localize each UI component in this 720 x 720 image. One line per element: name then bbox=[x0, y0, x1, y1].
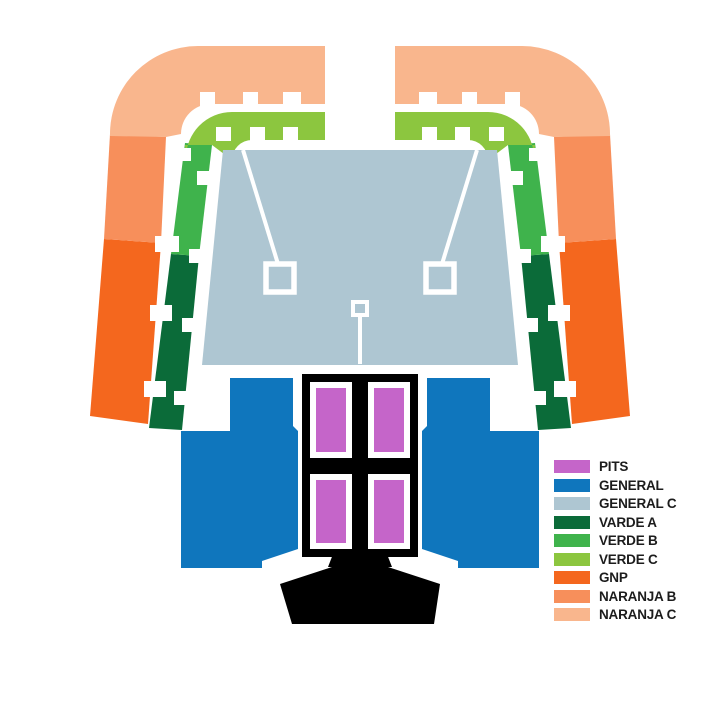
legend-swatch-general-c bbox=[554, 497, 590, 510]
legend-item-general-c: GENERAL C bbox=[554, 497, 676, 510]
legend-swatch-verde-b bbox=[554, 534, 590, 547]
stage bbox=[280, 567, 440, 624]
legend-swatch-varde-a bbox=[554, 516, 590, 529]
gate-notch bbox=[189, 249, 209, 263]
section-pits-2[interactable] bbox=[374, 388, 404, 452]
legend-item-verde-c: VERDE C bbox=[554, 553, 676, 566]
legend-label-verde-b: VERDE B bbox=[599, 534, 658, 547]
legend-swatch-naranja-c bbox=[554, 608, 590, 621]
legend-label-naranja-b: NARANJA B bbox=[599, 590, 676, 603]
legend-item-pits: PITS bbox=[554, 460, 676, 473]
legend-item-gnp: GNP bbox=[554, 571, 676, 584]
legend-item-naranja-c: NARANJA C bbox=[554, 608, 676, 621]
legend-label-verde-c: VERDE C bbox=[599, 553, 658, 566]
legend-swatch-general bbox=[554, 479, 590, 492]
seating-chart-page: PITS GENERAL GENERAL C VARDE A VERDE B V… bbox=[0, 0, 720, 720]
gate-notch bbox=[155, 236, 179, 252]
legend-swatch-pits bbox=[554, 460, 590, 473]
gate-notch bbox=[283, 92, 301, 106]
gate-notch bbox=[150, 305, 172, 321]
legend-item-general: GENERAL bbox=[554, 479, 676, 492]
gate-notch bbox=[216, 127, 231, 141]
legend-swatch-gnp bbox=[554, 571, 590, 584]
legend: PITS GENERAL GENERAL C VARDE A VERDE B V… bbox=[554, 460, 676, 621]
legend-label-varde-a: VARDE A bbox=[599, 516, 657, 529]
pits-block bbox=[302, 374, 418, 557]
legend-item-varde-a: VARDE A bbox=[554, 516, 676, 529]
section-general-left[interactable] bbox=[181, 378, 298, 568]
gate-notch bbox=[283, 127, 298, 141]
legend-label-naranja-c: NARANJA C bbox=[599, 608, 676, 621]
legend-item-verde-b: VERDE B bbox=[554, 534, 676, 547]
gate-notch bbox=[182, 318, 202, 332]
gate-notch bbox=[174, 391, 194, 405]
gate-notch bbox=[200, 92, 215, 106]
section-pits-1[interactable] bbox=[316, 388, 346, 452]
gate-notch bbox=[243, 92, 258, 106]
gate-notch bbox=[250, 127, 265, 141]
stage-neck bbox=[328, 549, 392, 567]
gate-notch bbox=[144, 381, 166, 397]
gate-notch bbox=[197, 171, 217, 185]
section-pits-4[interactable] bbox=[374, 480, 404, 543]
legend-label-pits: PITS bbox=[599, 460, 628, 473]
legend-label-general: GENERAL bbox=[599, 479, 664, 492]
legend-label-general-c: GENERAL C bbox=[599, 497, 676, 510]
section-pits-3[interactable] bbox=[316, 480, 346, 543]
section-naranja-b-left[interactable] bbox=[104, 134, 166, 243]
legend-swatch-naranja-b bbox=[554, 590, 590, 603]
gate-notch bbox=[176, 148, 191, 161]
legend-swatch-verde-c bbox=[554, 553, 590, 566]
legend-label-gnp: GNP bbox=[599, 571, 628, 584]
legend-item-naranja-b: NARANJA B bbox=[554, 590, 676, 603]
